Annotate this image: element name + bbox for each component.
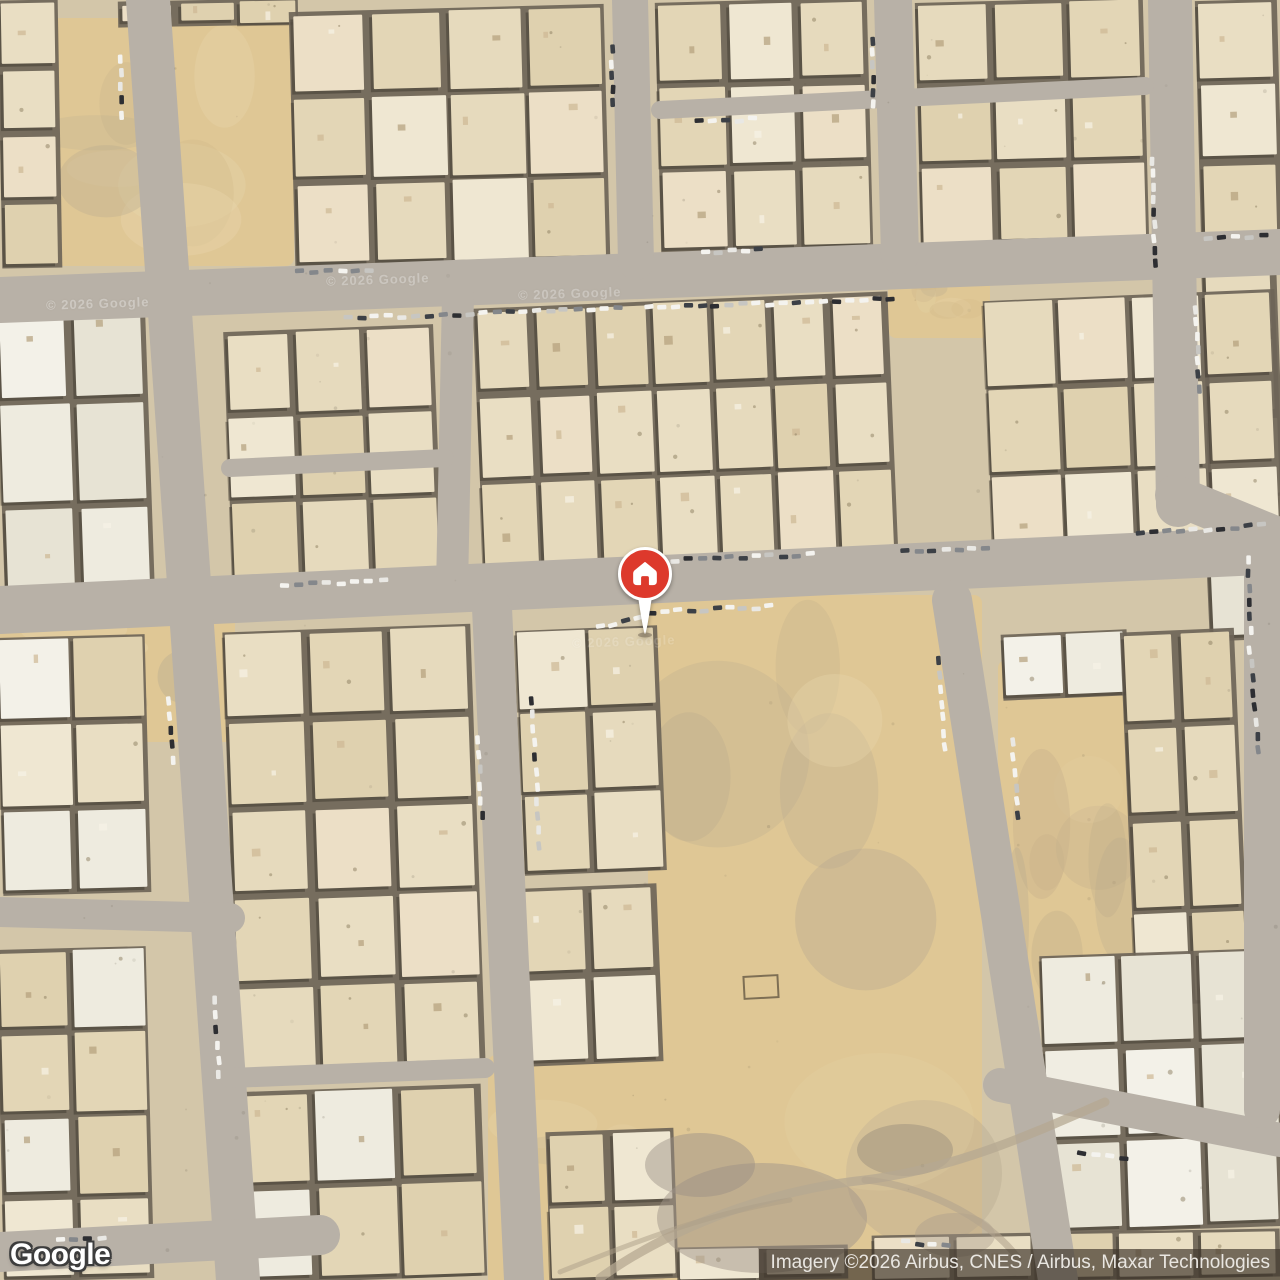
home-marker[interactable] [615,546,675,642]
home-pin-graphic [615,546,675,642]
pin-stem [638,596,652,634]
imagery-attribution: Imagery ©2026 Airbus, CNES / Airbus, Max… [759,1249,1280,1280]
google-logo[interactable]: Google [10,1238,110,1272]
satellite-map-view[interactable]: © 2026 Google© 2026 Google© 2026 Google©… [0,0,1280,1280]
